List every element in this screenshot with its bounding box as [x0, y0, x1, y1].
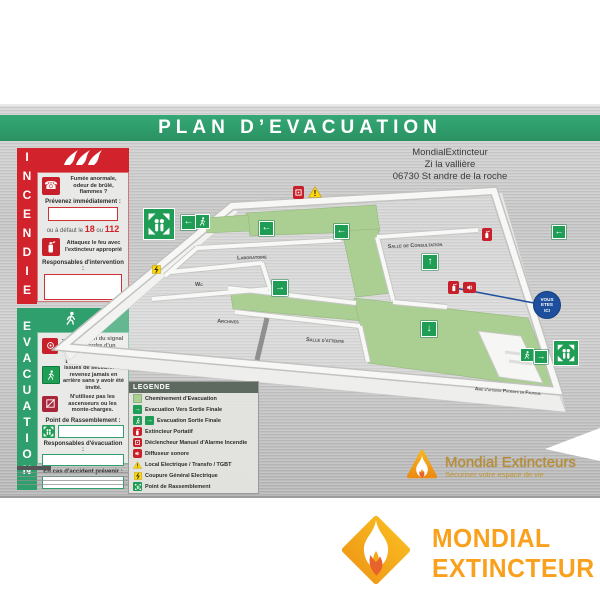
legend-row: Cheminement d'Evacuation	[129, 393, 258, 404]
arrow-up-icon: ↑	[422, 254, 438, 270]
assembly-point-icon	[133, 482, 142, 491]
extinguisher-icon	[448, 281, 459, 294]
sounder-icon	[463, 282, 476, 293]
svg-text:!: !	[314, 189, 317, 198]
legend-row: Coupure Général Electrique	[129, 470, 258, 481]
exit-man-icon	[520, 348, 534, 362]
arrow-left-icon: ←	[334, 224, 349, 239]
arrow-left-icon: ←	[259, 221, 274, 236]
footer-flame-icon	[334, 508, 418, 597]
exit-arrow-icon: →	[145, 416, 154, 425]
arrow-right-icon: →	[534, 350, 548, 364]
legend-row: ! Local Electrique / Transfo / TGBT	[129, 459, 258, 470]
manual-alarm-icon	[133, 438, 142, 447]
extinguisher-icon	[482, 228, 492, 241]
warning-triangle-icon: !	[308, 185, 322, 203]
arrow-left-icon: ←	[552, 225, 566, 239]
power-cut-icon	[152, 261, 161, 279]
you-are-here-badge: VOUS ETES ICI	[533, 291, 561, 319]
legend-label: Coupure Général Electrique	[145, 473, 218, 479]
footer-brand-logo: MONDIAL EXTINCTEUR	[334, 508, 600, 597]
warning-triangle-icon: !	[133, 460, 142, 469]
legend-label: Cheminement d'Evacuation	[145, 396, 217, 402]
exit-arrow-icon: →	[133, 405, 142, 414]
path-swatch-icon	[133, 394, 142, 403]
yah-line3: ICI	[544, 308, 550, 313]
exit-man-icon	[195, 214, 210, 229]
panel-brand-logo: Mondial Extincteurs Sécuriser votre espa…	[404, 448, 576, 485]
assembly-point-icon	[553, 340, 579, 366]
legend-row: Point de Rassemblement	[129, 481, 258, 492]
power-cut-icon	[133, 471, 142, 480]
legend-label: Local Electrique / Transfo / TGBT	[145, 462, 232, 468]
footer-brand-line2: EXTINCTEUR	[432, 553, 595, 583]
legend-row: Extincteur Portatif	[129, 426, 258, 437]
brand-name: Mondial Extincteurs	[445, 454, 576, 471]
legend-label: Déclencheur Manuel d'Alarme Incendie	[145, 440, 247, 446]
legend-box: LEGENDE Cheminement d'Evacuation → Evacu…	[128, 381, 259, 494]
room-label-laboratoire: Laboratoire	[237, 254, 267, 261]
arrow-right-icon: →	[272, 280, 288, 296]
arrow-left-icon: ←	[181, 215, 196, 230]
room-label-archives: Archives	[217, 319, 239, 326]
brand-flame-icon	[404, 448, 440, 485]
legend-row: → Evacuation Sortie Finale	[129, 415, 258, 426]
brand-tagline: Sécuriser votre espace de vie	[445, 470, 576, 479]
exit-man-icon	[133, 416, 142, 425]
footer-brand-line1: MONDIAL	[432, 523, 595, 553]
arrow-down-icon: ↓	[421, 321, 437, 337]
manual-alarm-icon	[293, 186, 304, 199]
legend-row: → Evacuation Vers Sortie Finale	[129, 404, 258, 415]
legend-label: Evacuation Sortie Finale	[157, 418, 221, 424]
assembly-point-icon	[143, 208, 175, 240]
legend-label: Evacuation Vers Sortie Finale	[145, 407, 222, 413]
evacuation-plan-poster: PLAN D’EVACUATION MondialExtincteur Zi l…	[0, 0, 600, 600]
legend-label: Extincteur Portatif	[145, 429, 193, 435]
sounder-icon	[133, 449, 142, 458]
extinguisher-icon	[133, 427, 142, 436]
svg-text:!: !	[137, 463, 139, 468]
legend-row: Déclencheur Manuel d'Alarme Incendie	[129, 437, 258, 448]
room-label-wc: Wc	[195, 282, 203, 288]
legend-row: Diffuseur sonore	[129, 448, 258, 459]
legend-label: Point de Rassemblement	[145, 484, 210, 490]
legend-title: LEGENDE	[129, 382, 258, 393]
legend-label: Diffuseur sonore	[145, 451, 189, 457]
